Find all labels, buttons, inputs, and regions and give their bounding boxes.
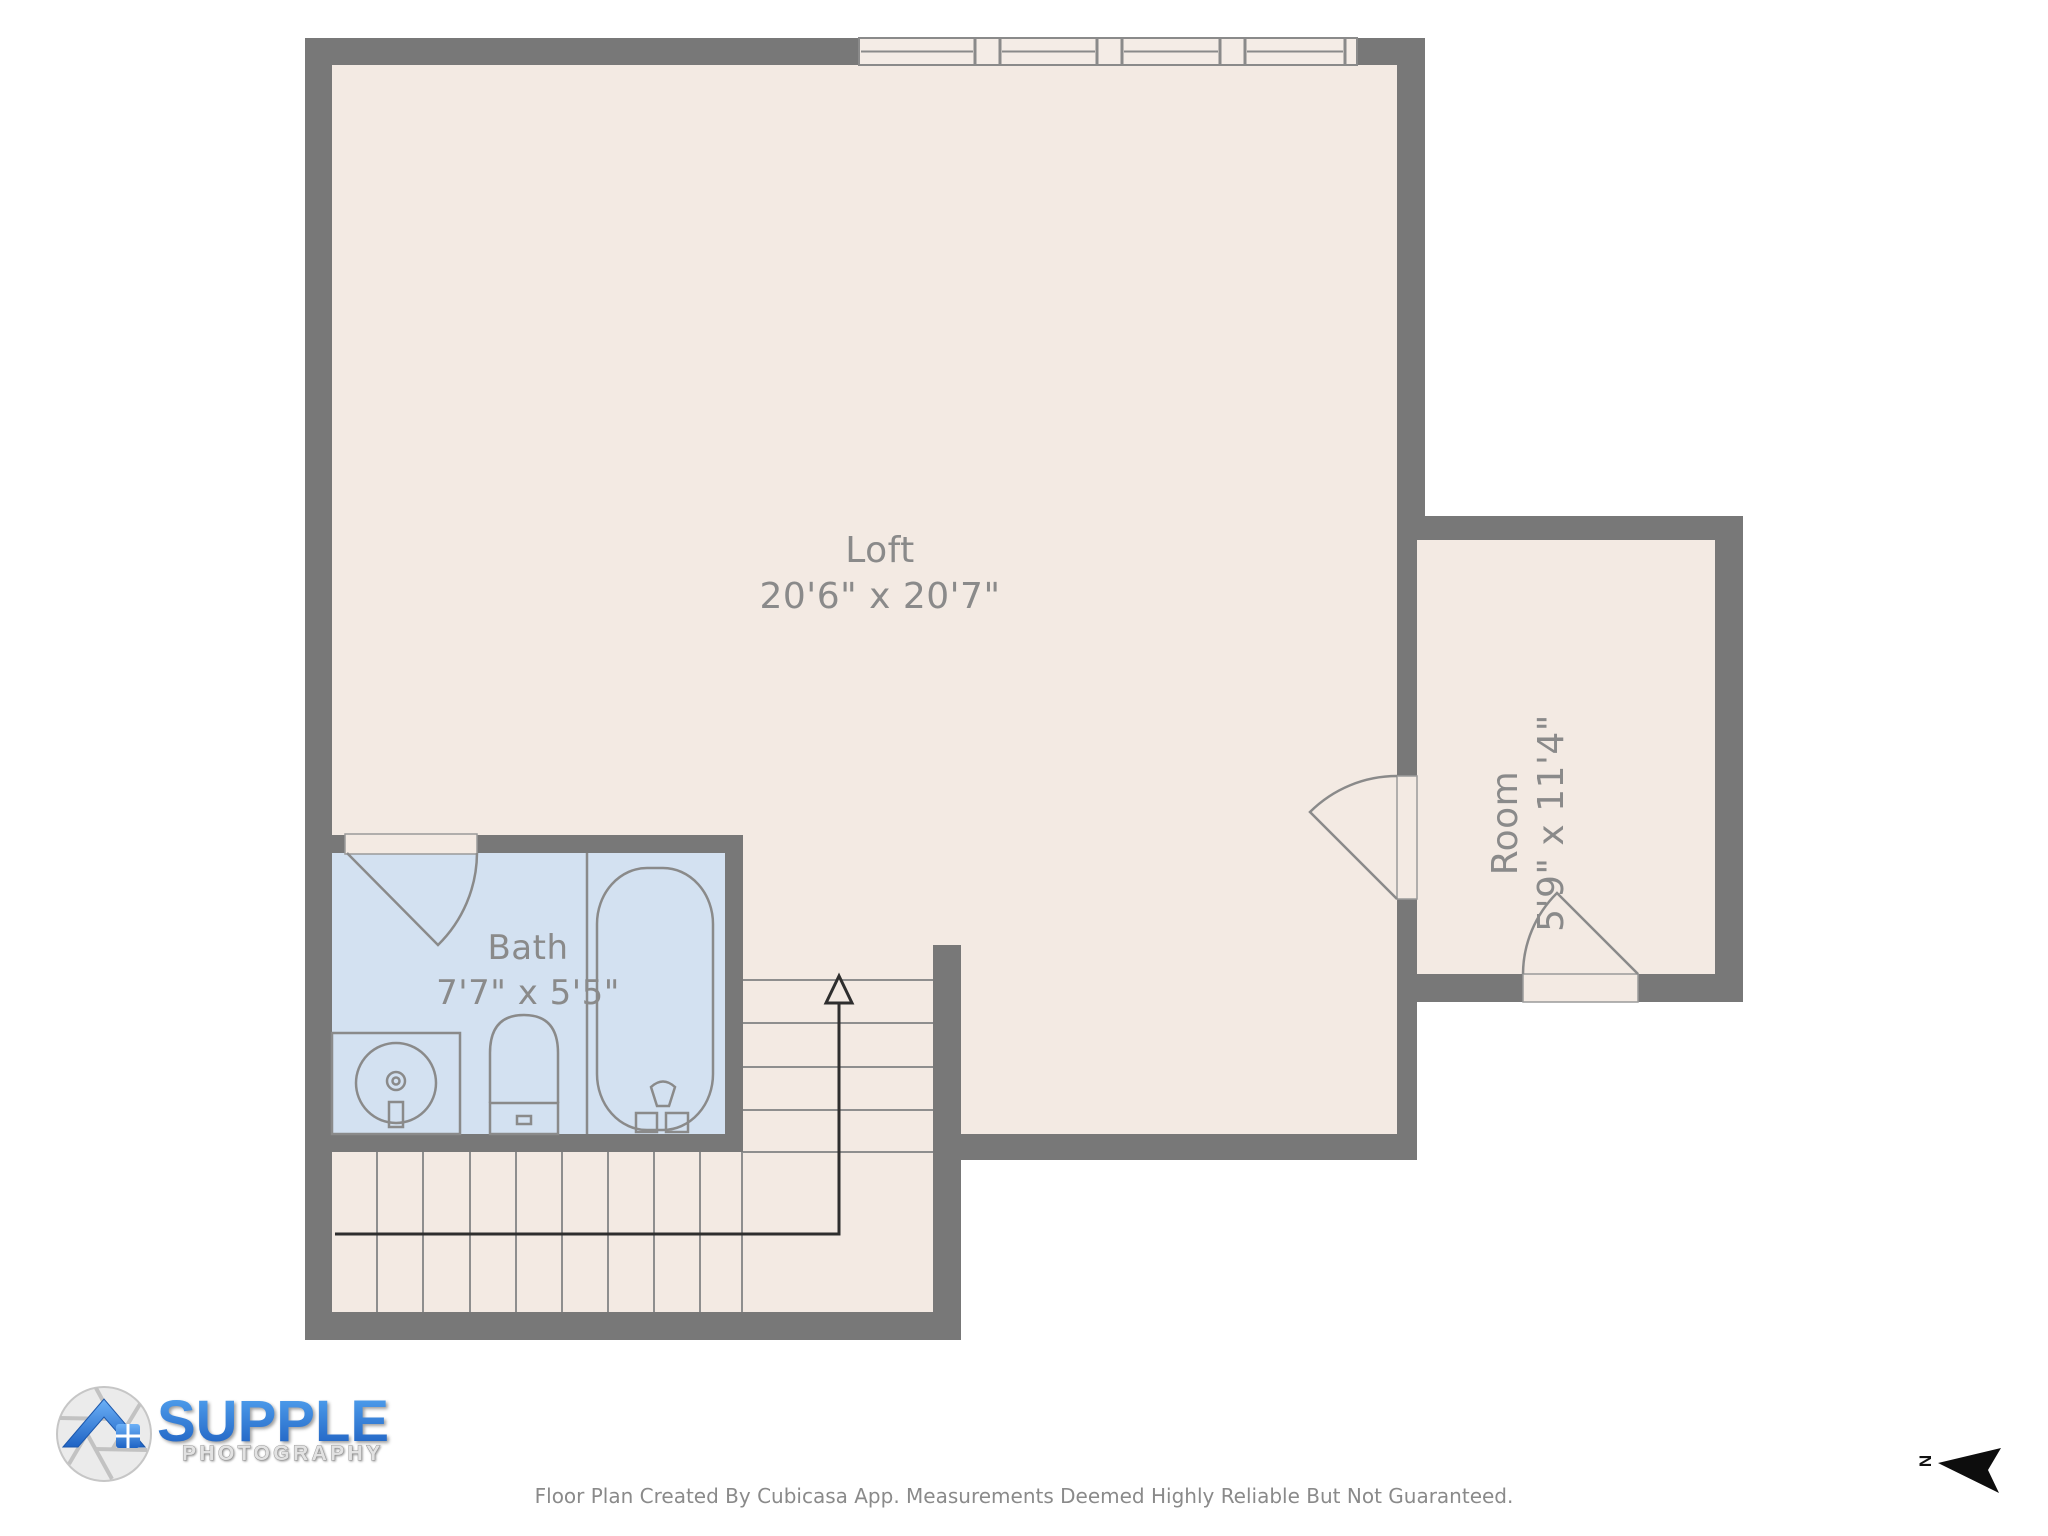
- logo-subtitle: PHOTOGRAPHY: [182, 1442, 384, 1465]
- room-right-wall: [1715, 516, 1743, 1002]
- bath-right-wall: [725, 835, 743, 1152]
- loft-room-divider-upper: [1397, 540, 1417, 776]
- loft-room-divider-lower: [1397, 899, 1417, 1160]
- room-dimensions: 5'9" x 11'4": [1529, 714, 1575, 932]
- loft-name: Loft: [759, 528, 1000, 574]
- bath-bottom-wall: [305, 1134, 742, 1152]
- stair-right-wall: [933, 945, 961, 1340]
- room-exterior-door-opening: [1523, 974, 1638, 1002]
- window: [859, 38, 1357, 65]
- room-label: Room 5'9" x 11'4": [1483, 714, 1575, 932]
- aperture-icon: [57, 1387, 151, 1481]
- loft-right-wall: [1397, 38, 1425, 540]
- bath-label: Bath 7'7" x 5'5": [436, 926, 620, 1016]
- loft-label: Loft 20'6" x 20'7": [759, 528, 1000, 620]
- bath-dimensions: 7'7" x 5'5": [436, 971, 620, 1016]
- bath-top-wall-left: [332, 835, 345, 853]
- north-label: N: [1916, 1455, 1936, 1467]
- room-name: Room: [1483, 714, 1529, 932]
- footer-disclaimer: Floor Plan Created By Cubicasa App. Meas…: [535, 1484, 1514, 1508]
- bath-door-opening: [345, 834, 477, 854]
- loft-room-door-opening: [1397, 776, 1417, 899]
- room-top-wall: [1397, 516, 1743, 540]
- bath-name: Bath: [436, 926, 620, 971]
- room-bottom-wall-right: [1638, 974, 1743, 1002]
- logo: SUPPLE PHOTOGRAPHY: [57, 1387, 389, 1481]
- floor-plan: SUPPLE PHOTOGRAPHY: [0, 0, 2048, 1536]
- stair-bottom-wall: [305, 1312, 961, 1340]
- loft-dimensions: 20'6" x 20'7": [759, 574, 1000, 620]
- page: SUPPLE PHOTOGRAPHY Loft 20'6" x 20'7" Ba…: [0, 0, 2048, 1536]
- loft-bottom-wall: [933, 1134, 1417, 1160]
- bath-top-wall-right: [477, 835, 742, 853]
- floors: [332, 65, 1715, 1312]
- north-arrow-icon: [1938, 1448, 2001, 1493]
